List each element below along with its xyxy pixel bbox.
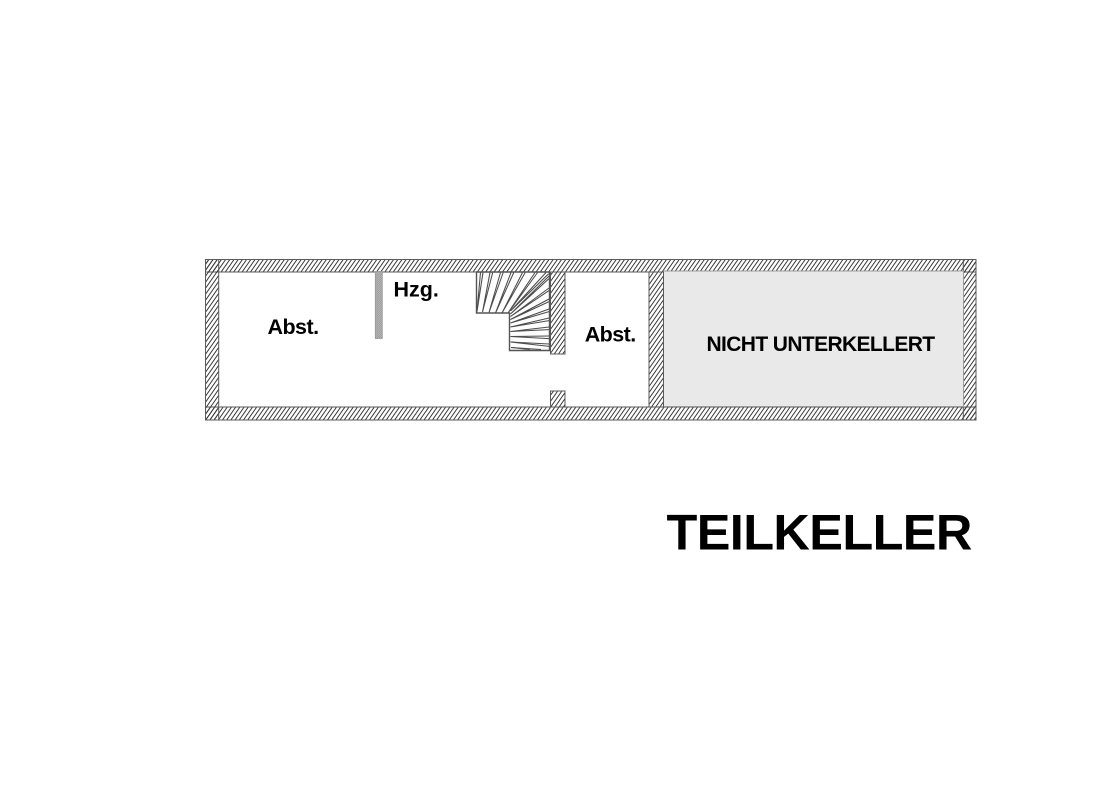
svg-text:Abst.: Abst. bbox=[268, 315, 319, 339]
svg-text:Hzg.: Hzg. bbox=[394, 278, 439, 302]
svg-text:Abst.: Abst. bbox=[585, 322, 636, 346]
svg-text:NICHT UNTERKELLERT: NICHT UNTERKELLERT bbox=[707, 333, 936, 356]
svg-text:TEILKELLER: TEILKELLER bbox=[667, 504, 972, 561]
